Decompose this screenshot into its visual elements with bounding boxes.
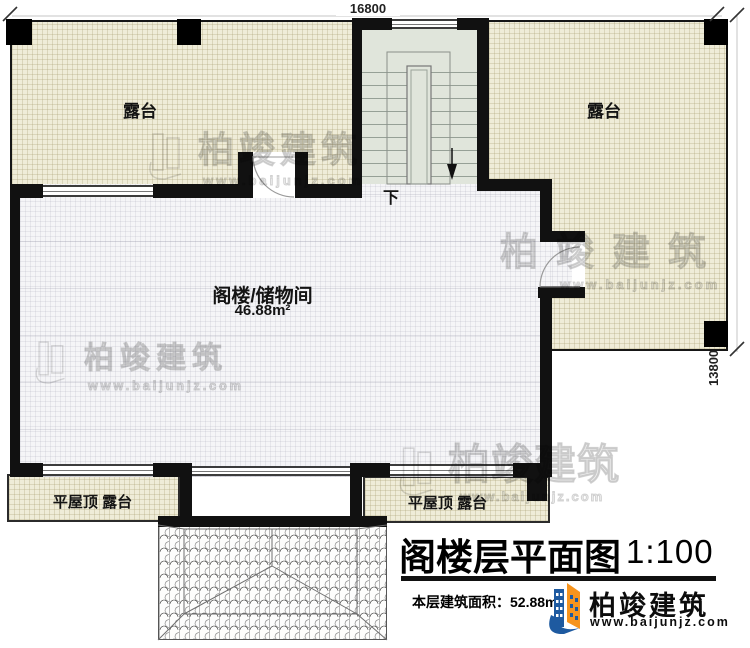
terrace-left-label: 露台 [108,97,172,122]
drawing-title: 阁楼层平面图 [399,527,621,581]
watermark: 柏竣建筑 www.baijunjz.com [143,130,187,189]
watermark-logo-icon [143,130,187,184]
brand-website: www.baijunjz.com [590,615,730,629]
watermark-logo-icon [30,338,70,388]
watermark-brand: 柏竣建筑 [500,234,724,272]
flat-roof-right-label: 平屋顶 露台 [390,492,505,513]
dimension-top: 16800 [336,1,400,16]
dimension-right: 13800 [706,336,728,400]
watermark: 柏竣建筑 www.baijunjz.com [30,338,70,393]
stair-down-label: 下 [380,184,402,208]
drawing-scale: 1:100 [626,533,714,571]
attic-area-label: 46.88m² [215,302,310,319]
floor-plan-canvas: 柏竣建筑 www.baijunjz.com 柏竣建筑 www.baijunjz.… [0,0,750,648]
brand-logo-icon [542,581,586,639]
terrace-right-label: 露台 [572,97,636,122]
watermark-website: www.baijunjz.com [203,174,363,187]
watermark-brand: 柏竣建筑 [448,444,620,486]
flat-roof-left-label: 平屋顶 露台 [35,491,150,512]
floor-area-text: 本层建筑面积：52.88m² [412,592,562,612]
watermark-brand: 柏竣建筑 [84,344,228,374]
watermark-website: www.baijunjz.com [560,278,720,291]
watermark-website: www.baijunjz.com [88,380,244,393]
watermark-brand: 柏竣建筑 [198,132,362,168]
